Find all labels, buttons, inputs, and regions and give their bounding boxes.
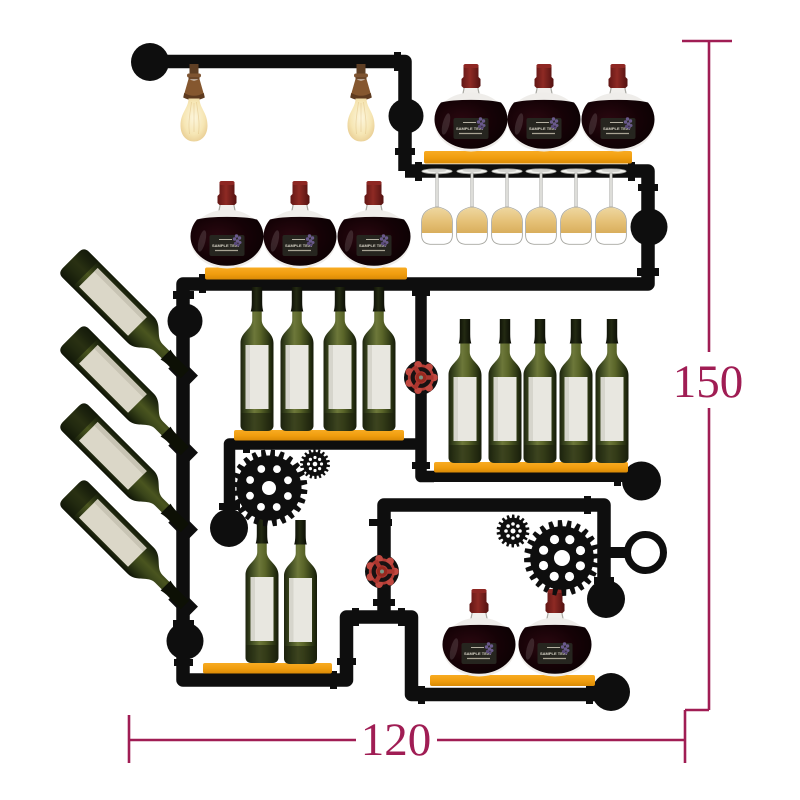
svg-text:120: 120 — [361, 714, 432, 766]
svg-text:150: 150 — [673, 356, 744, 408]
